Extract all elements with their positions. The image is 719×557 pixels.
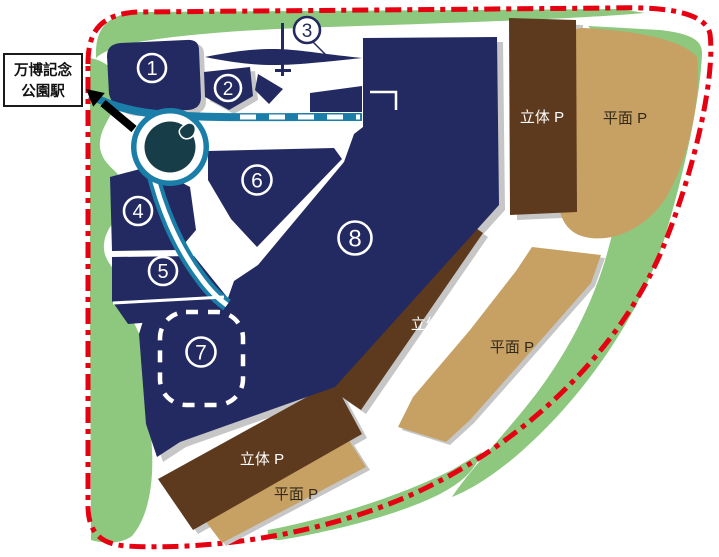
zone-8-number: 8 — [348, 226, 361, 253]
monorail-crossbar — [275, 69, 291, 72]
zone-3-number: 3 — [302, 21, 313, 42]
surface-label-top-right: 平面 P — [603, 110, 647, 127]
expo-park-map: 1 2 3 4 5 6 7 8 — [0, 0, 719, 557]
station-name-line2: 公園駅 — [21, 83, 65, 100]
multistory-label-bottom: 立体 P — [240, 451, 284, 468]
zone-2-number: 2 — [223, 79, 234, 100]
zone-1-number: 1 — [146, 58, 157, 80]
zone-7-number: 7 — [195, 342, 207, 365]
zone-6-number: 6 — [251, 170, 263, 193]
surface-label-middle: 平面 P — [490, 339, 534, 356]
multistory-label-middle: 立体 P — [411, 316, 455, 333]
park-map-svg: 1 2 3 4 5 6 7 8 — [0, 0, 719, 557]
zone-2-annex — [255, 74, 283, 104]
monorail-mast — [281, 23, 284, 76]
multistory-label-top-right: 立体 P — [520, 109, 564, 126]
surface-parking-top-right — [557, 28, 698, 238]
north-road-strip — [310, 86, 362, 112]
zone-4-number: 4 — [132, 201, 143, 223]
station-name-line1: 万博記念 — [13, 61, 72, 79]
roundabout — [134, 111, 206, 183]
zone-5-number: 5 — [157, 261, 168, 283]
surface-label-bottom: 平面 P — [274, 486, 318, 503]
